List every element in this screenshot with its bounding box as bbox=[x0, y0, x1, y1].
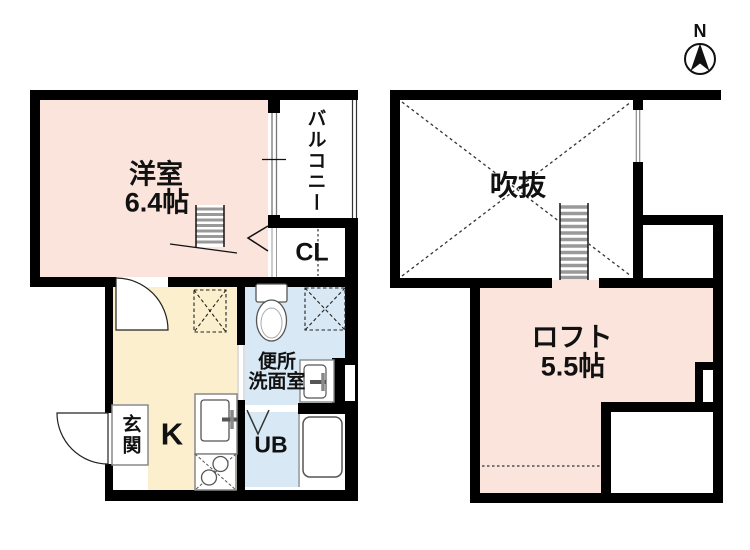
window-2f bbox=[633, 110, 643, 162]
kitchen-sink-icon bbox=[195, 394, 238, 454]
sliding-opening-cl bbox=[268, 228, 280, 277]
loft-size-label: 5.5帖 bbox=[541, 354, 606, 381]
balcony-label: バルコニー bbox=[306, 109, 325, 214]
room-door bbox=[116, 277, 168, 330]
stove-icon bbox=[195, 454, 236, 490]
closet-label: CL bbox=[295, 241, 328, 266]
loft-label: ロフト bbox=[532, 325, 613, 352]
entrance-label: 玄関 bbox=[121, 414, 140, 456]
entrance-door bbox=[57, 413, 113, 464]
balcony-railing bbox=[353, 100, 357, 218]
kitchen-label: K bbox=[161, 419, 183, 450]
toilet-icon bbox=[256, 284, 287, 341]
side-window-slot bbox=[345, 365, 355, 401]
floorplan-svg bbox=[0, 0, 750, 550]
bathtub-icon bbox=[303, 417, 342, 477]
western-room-label: 洋室 bbox=[129, 162, 183, 189]
washroom-label-line1: 便所 bbox=[258, 353, 296, 372]
compass-icon bbox=[685, 44, 715, 75]
ladder-1f bbox=[196, 205, 224, 247]
floorplan-page: 洋室 6.4帖 バルコニー CL K 便所 洗面室 UB 玄関 吹抜 ロフト 5… bbox=[0, 0, 750, 550]
compass-north-label: N bbox=[694, 22, 707, 40]
ladder-2f bbox=[559, 203, 589, 280]
loft-cutout bbox=[611, 412, 713, 493]
western-room-size-label: 6.4帖 bbox=[125, 190, 190, 217]
kitchen-washroom-opening bbox=[237, 345, 245, 400]
washroom-label-line2: 洗面室 bbox=[248, 373, 305, 392]
void-label: 吹抜 bbox=[490, 172, 546, 200]
floor2-plan bbox=[390, 90, 723, 503]
loft-notch bbox=[703, 370, 713, 402]
loft-ladder-landing bbox=[552, 280, 599, 289]
unit-bath-label: UB bbox=[254, 434, 287, 457]
